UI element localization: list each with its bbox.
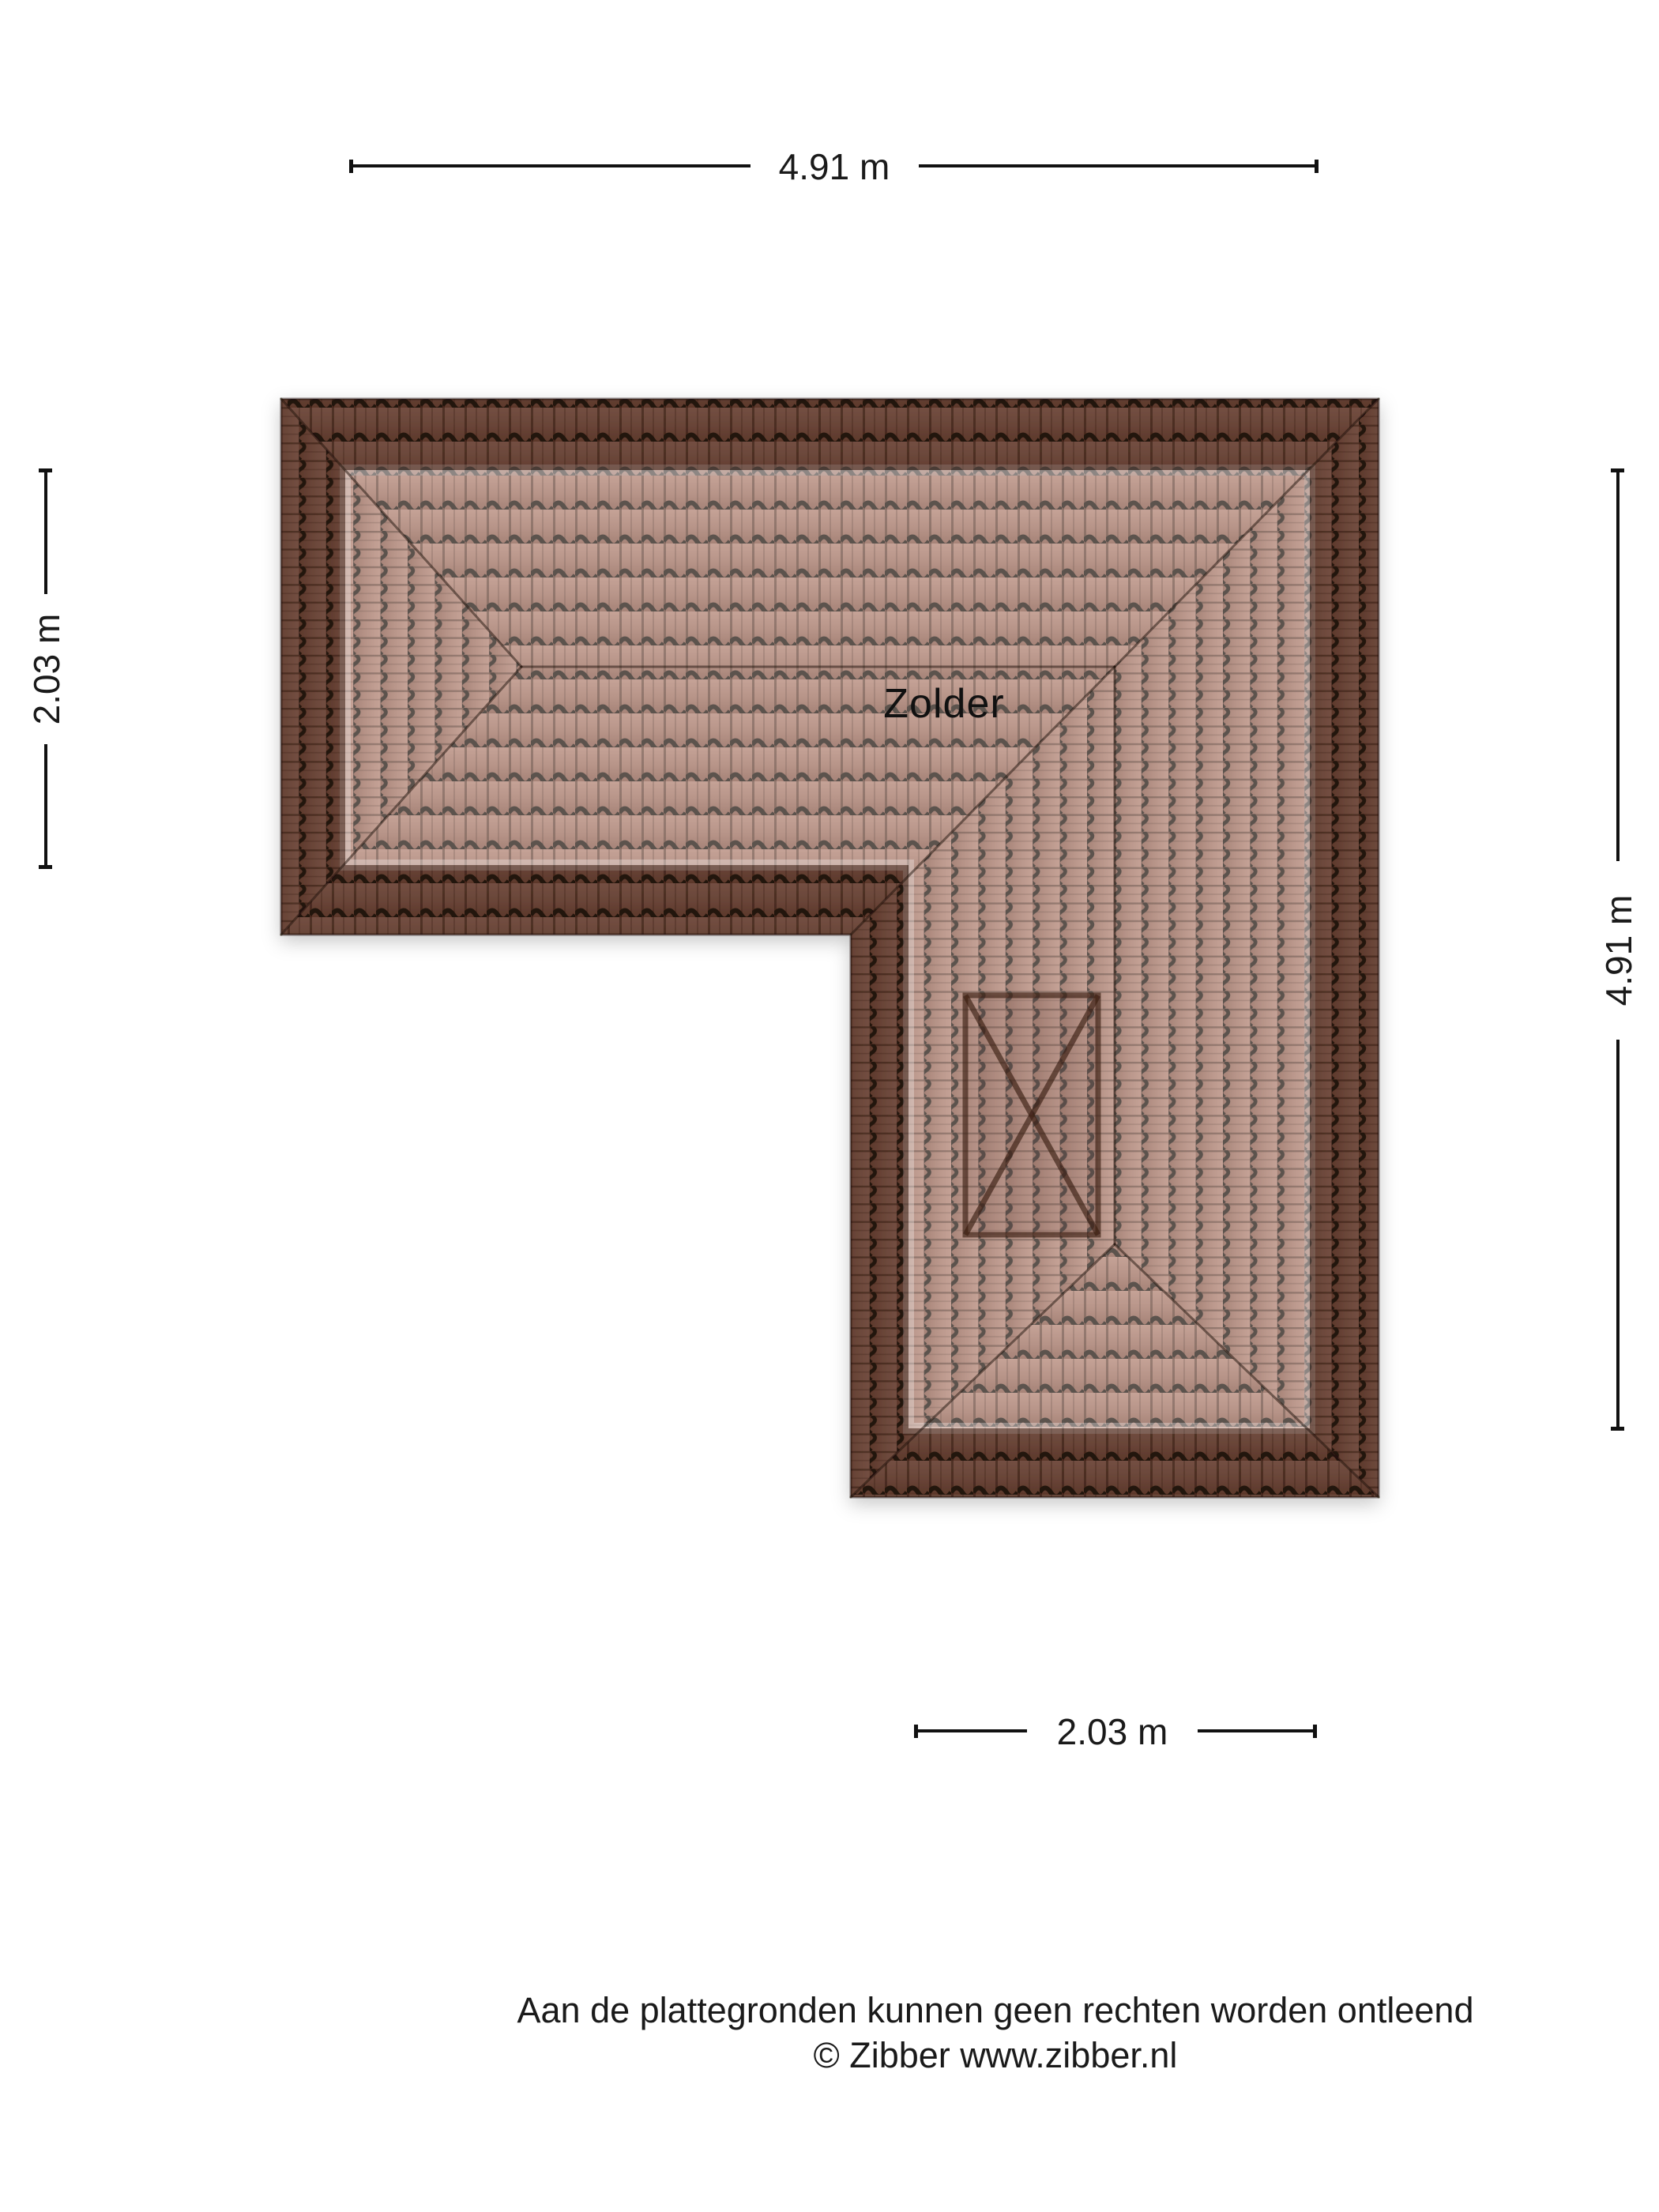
footer: Aan de plattegronden kunnen geen rechten… [442,1988,1548,2078]
dimension-left-line [44,470,47,594]
dimension-left-line [44,744,47,867]
footer-copyright: © Zibber www.zibber.nl [442,2033,1548,2078]
dimension-bottom-line [916,1729,1027,1732]
dimension-right-line [1616,1040,1619,1428]
dimension-left-label: 2.03 m [28,614,65,725]
floorplan-page: Zolder 4.91 m 2.03 m 4.91 m 2.03 m Aan d… [0,0,1659,2212]
dimension-right-line [1616,470,1619,861]
roof-plan [0,0,1659,2212]
dimension-bottom-label: 2.03 m [1057,1714,1168,1750]
footer-disclaimer: Aan de plattegronden kunnen geen rechten… [442,1988,1548,2033]
roof-window-x-icon [965,995,1098,1235]
dimension-bottom-line [1198,1729,1315,1732]
dimension-right-label: 4.91 m [1601,895,1637,1006]
dimension-top-label: 4.91 m [779,149,890,185]
dimension-top-tick [1315,160,1319,173]
dimension-left-tick [39,865,52,869]
dimension-top-line [919,164,1318,167]
dimension-right-tick [1611,468,1624,472]
dimension-bottom-tick [914,1725,918,1738]
roof-body [281,399,1379,1497]
dimension-bottom-tick [1313,1725,1317,1738]
room-label: Zolder [883,680,1004,728]
dimension-top-line [351,164,750,167]
room-highlight [345,470,1310,1428]
dimension-left-tick [39,468,52,472]
dimension-right-tick [1611,1427,1624,1431]
dimension-top-tick [349,160,353,173]
